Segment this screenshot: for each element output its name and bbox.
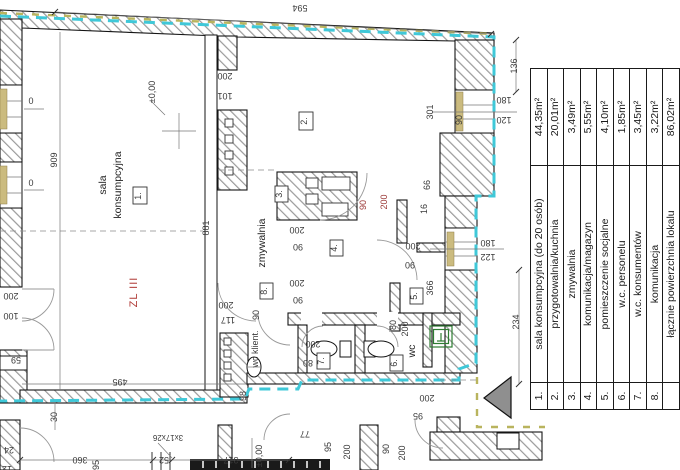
wall-segment	[360, 425, 378, 470]
level-marker-label: ±0,00	[147, 81, 157, 103]
dim: 200	[289, 278, 304, 288]
legend-row: 4. komunikacja/magazyn 5,55m²	[580, 69, 597, 410]
dim: 24	[4, 445, 14, 455]
fire-zone-label: ZL III	[128, 277, 140, 308]
wall-segment	[445, 196, 477, 228]
wall-segment	[430, 432, 542, 460]
room-number: 2.	[299, 117, 309, 125]
legend-row-number: 4.	[580, 383, 597, 410]
dim: 881	[201, 220, 211, 235]
legend-row-number	[663, 383, 680, 410]
dim: 95	[323, 442, 333, 452]
dim: 200	[397, 445, 407, 460]
dim: 594	[292, 3, 307, 13]
dim: 30	[49, 412, 59, 422]
dim: 90	[251, 310, 261, 320]
entrance-arrow	[484, 377, 511, 418]
dim: 100	[3, 311, 18, 321]
legend-room-name: przygotowalnia/kuchnia	[547, 166, 564, 383]
room-label-wc-klient: wc klient.	[250, 330, 260, 368]
dim: 317	[223, 455, 238, 465]
dim: 366	[425, 280, 435, 295]
dim: 90	[405, 260, 415, 270]
dim: 200	[400, 321, 410, 336]
dim: 180	[480, 238, 495, 248]
room-number: 5.	[409, 292, 419, 300]
legend-room-name: w.c. konsumentów	[630, 166, 647, 383]
dim: 0	[28, 178, 33, 188]
wall-segment	[0, 133, 22, 162]
level-marker-cross	[151, 101, 196, 149]
room-number-boxes: 1. 2. 3. 4. 5. 6. 7. 8.	[133, 112, 423, 371]
room-label-wc: wc	[406, 345, 418, 359]
window-sill	[0, 89, 7, 129]
partition-wall	[423, 313, 432, 367]
bottom-outside-walls	[152, 417, 542, 470]
legend-room-area: 1,85m²	[613, 69, 630, 166]
room-number: 7.	[316, 357, 326, 365]
legend-row: 5. pomieszczenie socjalne 4,10m²	[597, 69, 614, 410]
dim: 90	[381, 444, 391, 454]
legend-row-number: 2.	[547, 383, 564, 410]
legend-row: 8. komunikacja 3,22m²	[646, 69, 663, 410]
wall-segment	[0, 10, 494, 42]
room-number: 1.	[133, 192, 143, 200]
dim: 200	[305, 339, 320, 349]
dim: 360	[72, 455, 87, 465]
legend-room-area: 86,02m²	[663, 69, 680, 166]
dim: 200	[419, 393, 434, 403]
legend-row-number: 6.	[613, 383, 630, 410]
legend-row-number: 7.	[630, 383, 647, 410]
legend-row-number: 3.	[564, 383, 581, 410]
dim: 95	[91, 460, 101, 470]
wall-segment	[0, 208, 22, 287]
dim-red: 200	[379, 194, 389, 209]
door-arc	[20, 428, 54, 462]
legend-room-name: komunikacja/magazyn	[580, 166, 597, 383]
legend-room-name: zmywalnia	[564, 166, 581, 383]
room-label-sala-line2: konsumpcyjna	[112, 151, 124, 218]
room-number: 6.	[389, 359, 399, 367]
dim: 136	[509, 58, 519, 73]
dim: 101	[217, 91, 232, 101]
wall-segment	[455, 40, 494, 90]
dim: 200	[217, 71, 232, 81]
door-opening	[301, 312, 322, 326]
room-label-zmywalnia: zmywalnia	[256, 218, 268, 267]
legend-row: 7. w.c. konsumentów 3,45m²	[630, 69, 647, 410]
room-label-sala-line1: sala	[97, 175, 109, 194]
legend-row-total: łącznie powierzchnia lokalu 86,02m²	[663, 69, 680, 410]
room-number: 8.	[259, 287, 269, 295]
toilet-wc-personelu	[364, 341, 394, 357]
legend-room-area: 20,01m²	[547, 69, 564, 166]
dim: 117	[221, 315, 235, 325]
legend-row: 2. przygotowalnia/kuchnia 20,01m²	[547, 69, 564, 410]
dim: 66	[422, 180, 432, 190]
dim: 52	[159, 455, 169, 465]
legend-room-name: w.c. personelu	[613, 166, 630, 383]
sink-basin	[322, 177, 350, 190]
dim: 95	[413, 411, 423, 421]
legend-row-number: 8.	[646, 383, 663, 410]
legend-row-number: 1.	[531, 383, 548, 410]
electrical-box-symbol	[430, 326, 452, 347]
legend-table-container: 1. sala konsumpcyjna (do 20 osób) 44,35m…	[530, 84, 680, 410]
dim: 200	[342, 444, 352, 459]
door-arc	[264, 414, 290, 440]
wall-niche	[497, 433, 519, 449]
room-number: 4.	[329, 244, 339, 252]
legend-room-area: 5,55m²	[580, 69, 597, 166]
dim: 80	[388, 320, 398, 330]
dim: 200	[218, 300, 233, 310]
level-marker-label: ±0,00	[254, 445, 264, 467]
legend-room-name: komunikacja	[646, 166, 663, 383]
legend-room-name: łącznie powierzchnia lokalu	[663, 166, 680, 383]
dim: 98	[238, 391, 248, 401]
dim: 12	[2, 464, 12, 470]
partition-wall	[397, 200, 407, 243]
dim: 59	[11, 355, 21, 365]
legend-room-area: 4,10m²	[597, 69, 614, 166]
sink-basin	[322, 203, 348, 216]
legend-room-area: 3,49m²	[564, 69, 581, 166]
wall-segment	[440, 133, 494, 196]
dim: 16	[419, 204, 429, 214]
wall-segment	[0, 19, 22, 85]
legend-row: 3. zmywalnia 3,49m²	[564, 69, 581, 410]
dim: 0	[28, 96, 33, 106]
dim: 301	[425, 104, 435, 119]
dim: 122	[480, 252, 495, 262]
dim: 200	[405, 241, 420, 251]
legend-row: 1. sala konsumpcyjna (do 20 osób) 44,35m…	[531, 69, 548, 410]
legend-room-area: 44,35m²	[531, 69, 548, 166]
legend-room-area: 3,22m²	[646, 69, 663, 166]
dim: 909	[49, 152, 59, 167]
dim-red: 90	[358, 200, 368, 210]
dim: 90	[293, 295, 303, 305]
legend-row: 6. w.c. personelu 1,85m²	[613, 69, 630, 410]
stair-dimension-label: 3x17x26	[152, 433, 183, 442]
legend-row-number: 5.	[597, 383, 614, 410]
legend-room-name: sala konsumpcyjna (do 20 osób)	[531, 166, 548, 383]
dim: 90	[293, 242, 303, 252]
room-number: 3.	[274, 190, 284, 198]
wall-pier	[218, 36, 237, 70]
legend-room-area: 3,45m²	[630, 69, 647, 166]
legend-room-name: pomieszczenie socjalne	[597, 166, 614, 383]
dim: 80	[303, 358, 313, 368]
dim: 200	[289, 225, 304, 235]
floor-plan-drawing: 1. 2. 3. 4. 5. 6. 7. 8. sala konsumpcyjn…	[0, 0, 680, 470]
dim: 90	[454, 115, 464, 125]
dim: 200	[3, 291, 18, 301]
dim: 180	[496, 95, 511, 105]
legend-table: 1. sala konsumpcyjna (do 20 osób) 44,35m…	[530, 68, 680, 410]
partition-wall	[205, 35, 217, 390]
wall-segment	[437, 417, 460, 432]
dim: 234	[511, 314, 521, 329]
dim: 77	[300, 429, 310, 439]
window-sill	[0, 166, 7, 204]
door-arc	[258, 313, 290, 345]
dim: 120	[496, 115, 511, 125]
dim: 495	[112, 377, 127, 387]
